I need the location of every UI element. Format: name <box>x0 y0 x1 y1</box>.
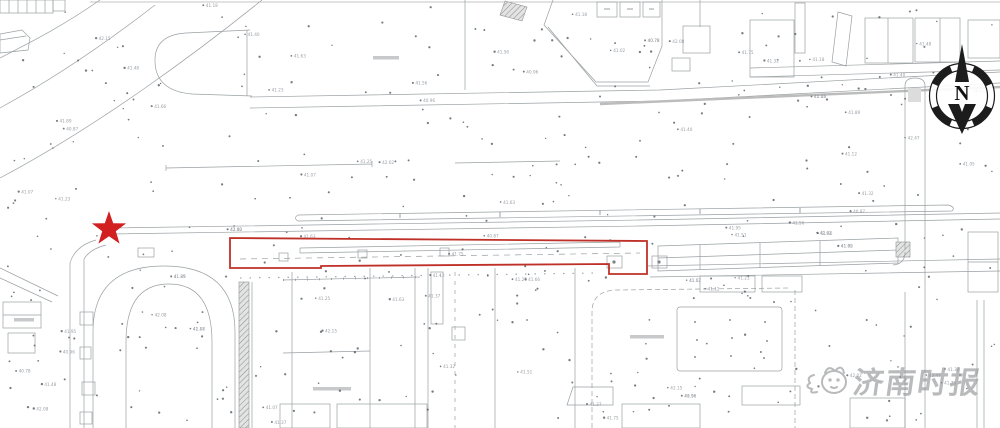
elevation-label: 42.15 <box>99 36 111 41</box>
survey-point <box>301 227 303 229</box>
survey-point <box>357 161 359 163</box>
survey-point <box>924 237 925 238</box>
survey-point <box>481 138 483 140</box>
survey-point <box>293 410 295 412</box>
survey-point <box>959 163 961 165</box>
elevation-label: 41.63 <box>294 54 306 59</box>
survey-point <box>13 292 15 294</box>
survey-point <box>603 411 605 413</box>
elevation-label: 41.18 <box>575 12 587 17</box>
survey-point <box>318 382 320 384</box>
survey-point <box>726 163 728 165</box>
survey-point <box>542 203 544 205</box>
survey-point <box>878 16 880 18</box>
survey-point <box>686 279 687 280</box>
survey-point <box>63 128 65 130</box>
survey-point <box>244 73 246 75</box>
survey-point <box>747 295 749 297</box>
survey-point <box>821 76 823 78</box>
survey-point <box>511 321 513 323</box>
survey-point <box>462 248 464 250</box>
survey-point <box>400 345 402 347</box>
survey-point <box>52 147 54 149</box>
survey-point <box>479 314 481 316</box>
survey-point <box>944 368 946 370</box>
survey-point <box>607 214 608 215</box>
elevation-label: 41.56 <box>415 81 427 86</box>
survey-point <box>64 378 66 380</box>
survey-point <box>423 323 425 325</box>
survey-point <box>701 112 703 114</box>
elevation-label: 41.48 <box>44 382 56 387</box>
survey-point <box>430 6 432 8</box>
survey-point <box>643 45 645 47</box>
survey-point <box>15 370 17 372</box>
survey-point <box>14 160 16 162</box>
survey-point <box>637 372 638 373</box>
survey-point <box>196 347 198 349</box>
survey-point <box>30 299 32 301</box>
elevation-label: 41.66 <box>528 277 540 282</box>
elevation-label: 41.32 <box>443 364 455 369</box>
elevation-label: 41.56 <box>792 220 804 225</box>
survey-point <box>903 335 904 336</box>
survey-point <box>734 277 735 278</box>
survey-point <box>491 143 493 145</box>
survey-point <box>412 82 414 84</box>
survey-point <box>485 220 487 222</box>
survey-point <box>96 394 98 396</box>
survey-point <box>842 84 843 85</box>
survey-point <box>817 232 819 234</box>
survey-point <box>648 409 650 411</box>
survey-point <box>313 411 315 413</box>
survey-point <box>512 278 514 280</box>
survey-point <box>560 184 562 186</box>
survey-point <box>899 376 901 378</box>
survey-point <box>257 160 259 162</box>
survey-point <box>557 417 559 419</box>
survey-point <box>741 293 743 295</box>
survey-point <box>889 415 891 417</box>
survey-point <box>572 14 574 16</box>
survey-point <box>18 190 20 192</box>
survey-point <box>972 364 974 366</box>
survey-point <box>75 188 77 190</box>
survey-point <box>872 200 874 202</box>
survey-point <box>658 112 660 114</box>
survey-point <box>202 4 204 6</box>
survey-point <box>389 298 391 300</box>
survey-point <box>123 108 124 109</box>
survey-point <box>189 226 191 228</box>
survey-point <box>245 26 247 28</box>
survey-point <box>610 373 612 375</box>
survey-point <box>941 382 943 384</box>
survey-point <box>455 374 457 376</box>
elevation-label: 42.47 <box>929 373 941 378</box>
survey-point <box>331 45 332 46</box>
survey-point <box>596 396 597 397</box>
survey-point <box>611 380 613 382</box>
survey-point <box>41 383 43 385</box>
survey-point <box>190 328 192 330</box>
survey-point <box>588 280 590 282</box>
survey-map-screenshot: 41.2541.3241.0741.4841.5642.0241.7541.18… <box>0 0 1000 428</box>
survey-point <box>68 337 70 339</box>
survey-point <box>553 201 555 203</box>
survey-point <box>364 278 366 280</box>
survey-point <box>773 301 775 303</box>
survey-point <box>942 234 944 236</box>
survey-point <box>429 327 431 329</box>
survey-point <box>994 344 995 345</box>
survey-point <box>64 11 66 13</box>
survey-point <box>523 71 525 73</box>
survey-point <box>491 174 493 176</box>
survey-point <box>300 298 302 300</box>
survey-point <box>483 29 485 31</box>
survey-point <box>165 327 167 329</box>
survey-point <box>890 74 892 76</box>
survey-point <box>241 86 243 88</box>
survey-point <box>143 254 145 256</box>
survey-point <box>681 170 683 172</box>
survey-point <box>295 114 297 116</box>
survey-point <box>13 202 15 204</box>
elevation-label: 41.40 <box>248 32 260 37</box>
survey-point <box>909 10 911 12</box>
survey-point <box>466 215 468 217</box>
survey-point <box>381 22 383 24</box>
survey-point <box>429 274 431 276</box>
survey-point <box>123 67 125 69</box>
survey-point <box>389 92 391 94</box>
survey-point <box>427 122 429 124</box>
survey-point <box>728 411 730 413</box>
survey-point <box>164 286 166 288</box>
survey-point <box>529 175 530 176</box>
elevation-label: 41.25 <box>318 296 330 301</box>
survey-point <box>117 47 118 48</box>
survey-point <box>170 275 172 277</box>
survey-point <box>840 183 842 185</box>
survey-point <box>865 270 867 272</box>
survey-point <box>991 171 993 173</box>
survey-point <box>286 231 288 233</box>
survey-point <box>650 50 652 52</box>
elevation-label: 41.89 <box>841 244 853 249</box>
survey-point <box>271 421 273 423</box>
survey-point <box>400 254 402 256</box>
survey-point <box>39 289 41 291</box>
survey-point <box>260 366 261 367</box>
survey-point <box>653 215 655 217</box>
survey-point <box>556 163 558 165</box>
elevation-label: 41.75 <box>742 50 754 55</box>
survey-point <box>984 165 986 167</box>
survey-point <box>558 116 560 118</box>
survey-point <box>918 286 920 288</box>
survey-point <box>614 85 616 87</box>
survey-point <box>202 311 204 313</box>
survey-point <box>920 413 922 415</box>
survey-point <box>866 319 868 321</box>
elevation-label: 41.37 <box>428 294 440 299</box>
survey-point <box>732 143 734 145</box>
survey-point <box>879 76 881 78</box>
survey-point <box>425 295 427 297</box>
survey-point <box>762 13 763 14</box>
survey-point <box>897 366 899 368</box>
survey-point <box>545 138 546 139</box>
elevation-label: 41.37 <box>590 402 602 407</box>
survey-point <box>365 91 367 93</box>
elevation-label: 42.08 <box>36 406 48 411</box>
elevation-label: 41.40 <box>893 72 905 77</box>
elevation-label: 41.32 <box>862 191 874 196</box>
survey-point <box>866 171 868 173</box>
survey-point <box>37 360 39 362</box>
survey-point <box>7 207 9 209</box>
survey-point <box>254 198 256 200</box>
survey-point <box>566 37 568 39</box>
survey-point <box>533 39 535 41</box>
survey-point <box>837 245 839 247</box>
survey-point <box>273 244 275 246</box>
survey-point <box>749 116 751 118</box>
survey-point <box>171 250 173 252</box>
survey-point <box>886 419 888 421</box>
elevation-label: 41.48 <box>127 66 139 71</box>
survey-point <box>122 45 124 47</box>
survey-point <box>513 176 515 178</box>
survey-point <box>217 398 219 400</box>
elevation-label: 40.78 <box>19 369 31 374</box>
survey-point <box>652 397 654 399</box>
survey-point <box>517 371 519 373</box>
elevation-label: 41.75 <box>607 416 619 421</box>
survey-point <box>668 177 670 179</box>
survey-point <box>723 284 725 286</box>
survey-map-canvas: 41.2541.3241.0741.4841.5642.0241.7541.18… <box>0 0 1000 428</box>
survey-point <box>431 390 433 392</box>
survey-point <box>175 327 177 329</box>
survey-point <box>817 385 819 387</box>
elevation-label: 41.37 <box>274 420 286 425</box>
survey-point <box>50 143 52 145</box>
survey-point <box>541 28 543 30</box>
survey-point <box>603 417 605 419</box>
survey-point <box>797 100 799 102</box>
survey-point <box>916 43 917 44</box>
survey-point <box>351 176 353 178</box>
elevation-label: 41.89 <box>60 119 72 124</box>
survey-point <box>806 167 808 169</box>
survey-point <box>357 347 359 349</box>
survey-point <box>684 204 686 206</box>
survey-point <box>24 158 26 160</box>
survey-point <box>807 85 809 87</box>
survey-point <box>284 373 286 375</box>
survey-point <box>710 277 712 279</box>
survey-point <box>749 297 751 299</box>
survey-point <box>33 86 35 88</box>
survey-point <box>991 345 993 347</box>
elevation-label: 41.02 <box>613 48 625 53</box>
elevation-label: 41.25 <box>360 159 372 164</box>
survey-point <box>967 128 969 130</box>
survey-point <box>668 405 670 407</box>
survey-point <box>440 366 442 368</box>
survey-point <box>599 95 601 97</box>
survey-point <box>698 82 700 84</box>
survey-point <box>158 84 160 86</box>
survey-point <box>738 51 740 53</box>
survey-point <box>162 145 164 147</box>
survey-point <box>901 104 903 106</box>
elevation-label: 41.40 <box>680 127 692 132</box>
survey-point <box>644 39 646 41</box>
elevation-label: 40.96 <box>684 394 696 399</box>
survey-point <box>568 359 570 361</box>
survey-point <box>890 360 891 361</box>
survey-point <box>152 190 154 192</box>
survey-point <box>845 111 847 113</box>
survey-point <box>420 99 422 101</box>
survey-point <box>789 390 791 392</box>
survey-point <box>22 59 24 61</box>
survey-point <box>704 288 706 290</box>
survey-point <box>667 387 669 389</box>
survey-point <box>289 197 291 199</box>
survey-point <box>846 374 848 376</box>
survey-point <box>128 119 130 121</box>
survey-point <box>95 37 97 39</box>
survey-point <box>904 137 905 138</box>
elevation-label: 41.56 <box>497 50 509 55</box>
survey-point <box>777 401 779 403</box>
survey-point <box>268 89 270 91</box>
survey-point <box>560 55 562 57</box>
survey-point <box>610 50 612 52</box>
survey-point <box>61 330 63 332</box>
survey-point <box>139 390 140 391</box>
survey-point <box>779 87 780 88</box>
survey-point <box>605 276 607 278</box>
survey-point <box>840 225 842 227</box>
survey-point <box>228 135 230 137</box>
survey-point <box>633 411 635 413</box>
survey-point <box>126 92 128 94</box>
elevation-label: 41.51 <box>735 232 747 237</box>
elevation-label: 41.51 <box>520 370 532 375</box>
survey-point <box>492 309 494 311</box>
survey-point <box>738 94 740 96</box>
survey-point <box>866 58 868 60</box>
elevation-label: 42.15 <box>670 385 682 390</box>
survey-point <box>158 411 160 413</box>
survey-point <box>37 236 39 238</box>
survey-point <box>875 324 877 326</box>
elevation-label: 41.95 <box>729 225 741 230</box>
survey-point <box>516 302 518 304</box>
survey-point <box>435 323 437 325</box>
survey-point <box>598 162 600 164</box>
elevation-label: 40.87 <box>66 126 78 131</box>
survey-point <box>131 287 133 289</box>
survey-point <box>564 134 566 136</box>
survey-point <box>264 261 266 263</box>
survey-point <box>300 173 302 175</box>
survey-point <box>699 378 701 380</box>
elevation-label: 42.47 <box>193 326 205 331</box>
elevation-label: 41.48 <box>919 41 931 46</box>
survey-point <box>754 367 756 369</box>
survey-point <box>379 161 381 163</box>
elevation-label: 40.87 <box>487 234 499 239</box>
survey-point <box>773 199 775 201</box>
survey-point <box>526 319 528 321</box>
survey-point <box>858 192 860 194</box>
survey-point <box>904 98 906 100</box>
survey-point <box>45 218 47 220</box>
elevation-label: 40.96 <box>526 69 538 74</box>
survey-point <box>394 160 396 162</box>
survey-point <box>413 179 415 181</box>
survey-point <box>50 248 52 250</box>
survey-point <box>145 347 147 349</box>
survey-point <box>150 181 152 183</box>
survey-point <box>359 399 361 401</box>
survey-point <box>795 368 797 370</box>
survey-point <box>760 351 762 353</box>
survey-point <box>32 335 34 337</box>
survey-point <box>415 35 417 37</box>
survey-point <box>63 53 64 54</box>
survey-point <box>328 191 330 193</box>
survey-point <box>917 194 919 196</box>
survey-point <box>706 343 708 345</box>
survey-point <box>222 389 224 391</box>
survey-point <box>895 223 897 225</box>
survey-point <box>463 195 465 197</box>
survey-point <box>330 350 332 352</box>
elevation-label: 41.18 <box>812 57 824 62</box>
survey-point <box>151 314 152 315</box>
elevation-label: 41.89 <box>848 110 860 115</box>
survey-point <box>805 159 807 161</box>
survey-point <box>556 182 558 184</box>
survey-point <box>725 227 727 229</box>
elevation-label: 41.95 <box>64 329 76 334</box>
survey-point <box>11 296 13 298</box>
survey-point <box>487 275 489 277</box>
survey-point <box>926 374 928 376</box>
elevation-label: 41.66 <box>820 231 832 236</box>
elevation-label: 40.96 <box>63 349 75 354</box>
survey-point <box>258 56 260 58</box>
survey-point <box>826 98 828 100</box>
survey-point <box>437 74 439 76</box>
survey-point <box>492 64 494 66</box>
elevation-label: 41.66 <box>154 104 166 109</box>
survey-point <box>763 59 765 61</box>
survey-point <box>590 38 592 40</box>
survey-point <box>96 235 98 237</box>
survey-point <box>127 336 129 338</box>
survey-point <box>693 297 695 299</box>
